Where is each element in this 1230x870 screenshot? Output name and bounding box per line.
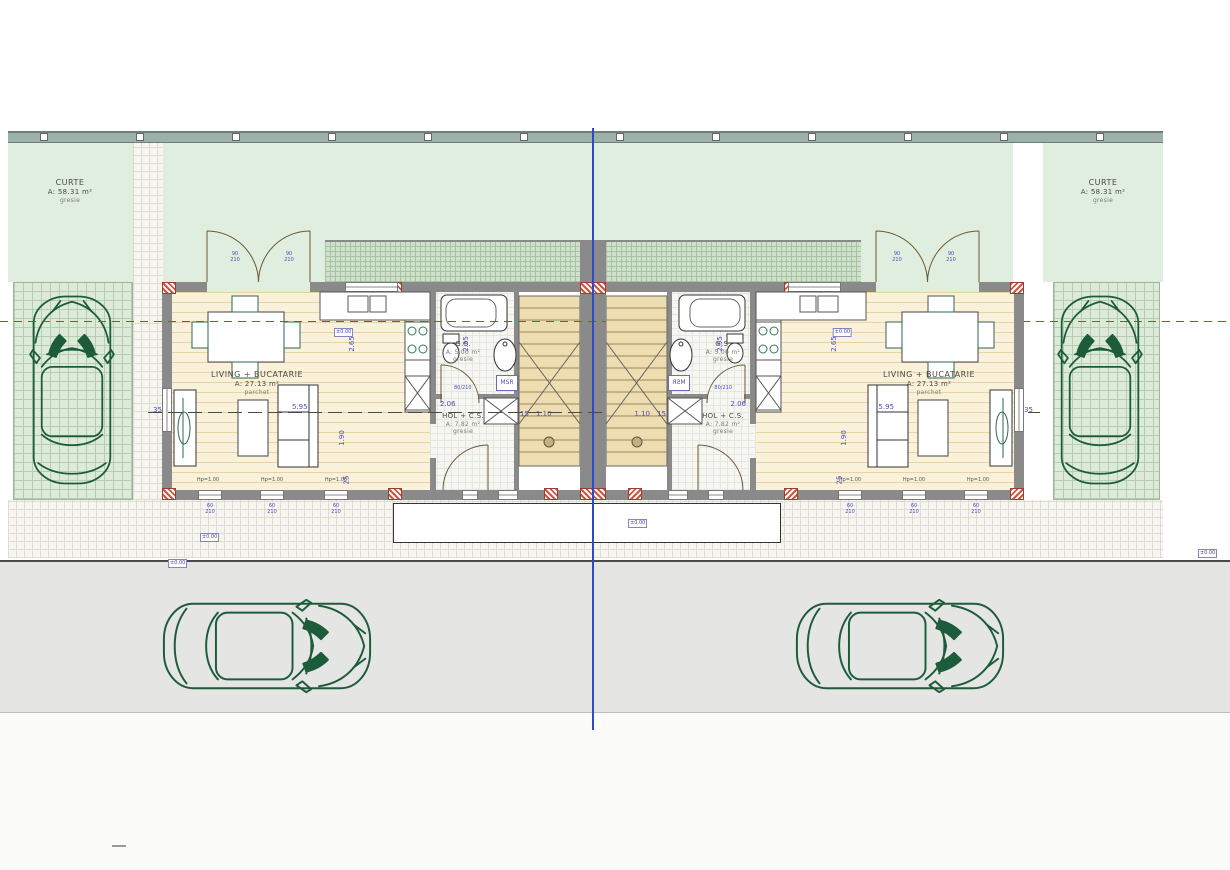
- washing-machine-label: MSR: [496, 375, 518, 391]
- dim-entry-leaf-a: 90 210: [944, 252, 958, 263]
- dim-stair-step: 15: [657, 410, 666, 418]
- living-label: LIVING + BUCATARIE A: 27.13 m² parchet: [197, 370, 317, 396]
- dim-bath-door: 80/210: [714, 386, 732, 392]
- window-parapet-label: Hp=1.00: [252, 478, 292, 484]
- level-marker: ±0.00: [334, 328, 353, 337]
- window-size-tag: 60 210: [908, 504, 920, 515]
- survey-tick: [112, 845, 126, 847]
- level-marker: ±0.00: [833, 328, 852, 337]
- dim-living-width: 5.95: [878, 403, 894, 411]
- unit-fixtures: [162, 222, 580, 500]
- window-size-tag: 60 210: [330, 504, 342, 515]
- dim-living-depth: 2.65: [830, 336, 838, 352]
- dim-bath-door: 80/210: [454, 386, 472, 392]
- dim-bath-depth: 2.55: [716, 336, 724, 352]
- dim-living-depth: 2.65: [348, 336, 356, 352]
- dim-hall-width: 2.06: [440, 400, 456, 408]
- curte-right-label: CURTE A: 58.31 m² gresie: [1048, 178, 1158, 204]
- boundary-fence: [8, 131, 1163, 143]
- dim-entry-leaf-b: 90 210: [890, 252, 904, 263]
- front-porch: [393, 503, 781, 543]
- level-marker: ±0.00: [200, 533, 219, 542]
- street-car-right: [792, 596, 1008, 696]
- dim-living-width: 5.95: [292, 403, 308, 411]
- level-marker: ±0.00: [168, 559, 187, 568]
- fence-post: [904, 133, 912, 141]
- window-size-tag: 60 210: [266, 504, 278, 515]
- property-centerline: [592, 128, 594, 730]
- fence-post: [136, 133, 144, 141]
- fence-post: [520, 133, 528, 141]
- fence-post: [616, 133, 624, 141]
- window-parapet-label: Hp=1.00: [830, 478, 870, 484]
- area-beyond-street: [0, 712, 1230, 870]
- dim-hall-width: 2.06: [730, 400, 746, 408]
- window-parapet-label: Hp=1.00: [188, 478, 228, 484]
- fence-post: [712, 133, 720, 141]
- fence-post: [232, 133, 240, 141]
- unit-left: LIVING + BUCATARIE A: 27.13 m² parchet G…: [162, 282, 580, 500]
- dim-wall-tick: 35: [1024, 406, 1033, 414]
- fence-post: [808, 133, 816, 141]
- dim-sofa-zone: 1.90: [338, 430, 346, 446]
- level-marker: ±0.00: [628, 519, 647, 528]
- dim-entry-leaf-b: 90 210: [282, 252, 296, 263]
- living-label: LIVING + BUCATARIE A: 27.13 m² parchet: [869, 370, 989, 396]
- unit-right: LIVING + BUCATARIE A: 27.13 m² parchet G…: [606, 282, 1024, 500]
- floor-plan-canvas: CURTE A: 58.31 m² gresie CURTE A: 58.31 …: [0, 0, 1230, 870]
- fence-post: [1096, 133, 1104, 141]
- fence-post: [1000, 133, 1008, 141]
- dim-stair-flight: 1.10: [634, 410, 650, 418]
- window-parapet-label: Hp=1.00: [316, 478, 356, 484]
- window-size-tag: 60 210: [844, 504, 856, 515]
- street-car-left: [159, 596, 375, 696]
- curte-left-label: CURTE A: 58.31 m² gresie: [18, 178, 122, 204]
- hall-label: HOL + C.S. A: 7.82 m² gresie: [434, 412, 492, 436]
- dim-bath-depth: 2.55: [462, 336, 470, 352]
- unit-fixtures: [606, 222, 1024, 500]
- dim-entry-leaf-a: 90 210: [228, 252, 242, 263]
- hall-label: HOL + C.S. A: 7.82 m² gresie: [694, 412, 752, 436]
- window-size-tag: 60 210: [204, 504, 216, 515]
- fence-post: [40, 133, 48, 141]
- fence-post: [328, 133, 336, 141]
- fence-post: [424, 133, 432, 141]
- window-parapet-label: Hp=1.00: [894, 478, 934, 484]
- window-parapet-label: Hp=1.00: [958, 478, 998, 484]
- window-size-tag: 60 210: [970, 504, 982, 515]
- washing-machine-label: MSR: [668, 375, 690, 391]
- dim-sofa-zone: 1.90: [840, 430, 848, 446]
- level-marker: ±0.00: [1198, 549, 1217, 558]
